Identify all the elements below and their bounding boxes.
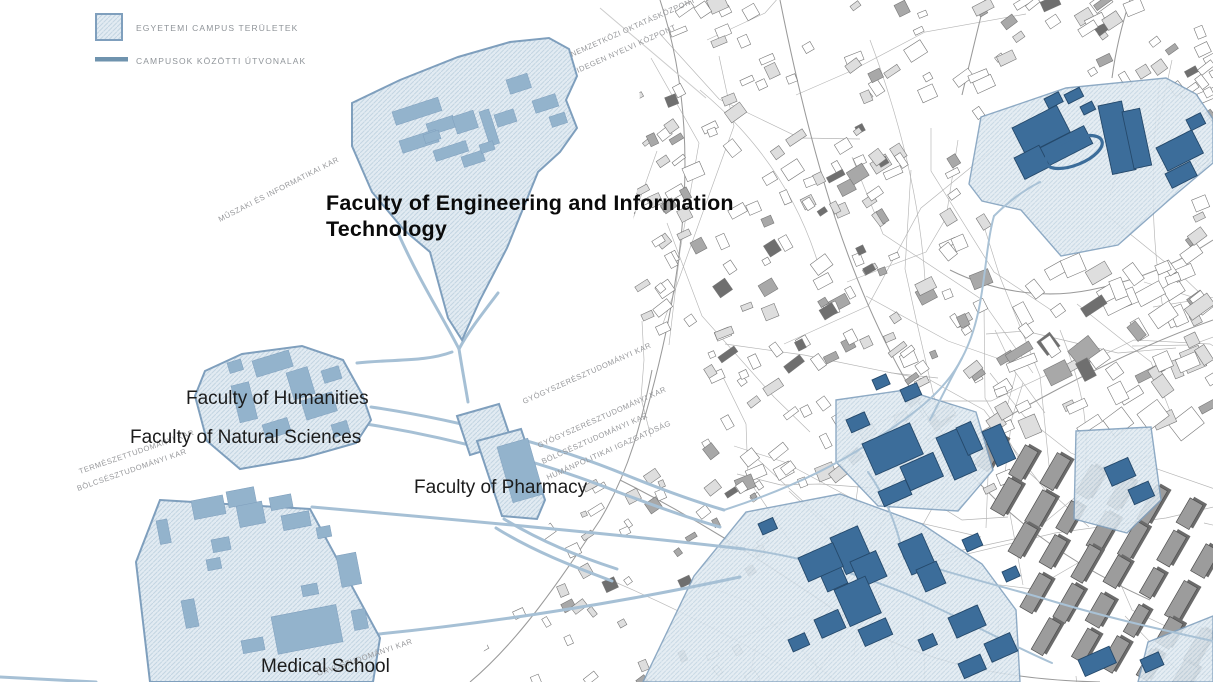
city-building [1205,366,1213,386]
parcel-line [667,223,810,432]
city-building [1013,302,1034,327]
city-building [1066,398,1088,414]
legend-campus-area-swatch [96,14,122,40]
label-engineering-line1: Faculty of Engineering and Information [326,191,734,215]
city-building [721,415,735,430]
city-building [969,269,993,290]
city-building [819,433,832,449]
city-building [722,93,738,106]
city-building [646,133,659,147]
label-humanities: Faculty of Humanities [186,388,369,409]
city-building [817,207,827,217]
legend-route-line-label: CAMPUSOK KÖZÖTTI ÚTVONALAK [136,56,306,66]
city-building [1060,253,1086,278]
city-building [530,674,542,682]
city-building [746,201,762,216]
city-building [581,511,588,518]
city-building [656,155,670,168]
city-building [587,606,597,617]
legend-campus-area-label: EGYETEMI CAMPUS TERÜLETEK [136,23,298,33]
city-building [948,188,961,200]
city-building [542,617,552,628]
city-building [638,659,649,672]
city-building [1151,59,1168,76]
city-building [786,129,807,147]
city-building [624,519,633,528]
city-building [617,619,627,628]
city-building [740,75,755,86]
city-building [1122,262,1144,285]
city-building [860,336,874,350]
city-building [1105,362,1123,380]
city-building [723,139,741,158]
annotation-gyogyszeresz-1: GYÓGYSZERÉSZTUDOMÁNYI KAR [521,341,652,406]
city-building [860,90,873,104]
city-building [763,239,781,257]
city-building [764,62,780,79]
city-building [784,355,805,374]
city-building [723,260,737,275]
city-building [1165,43,1178,55]
city-building [1192,195,1210,212]
city-building [708,351,716,359]
legend-route-line-swatch [95,57,128,62]
city-building [769,342,783,357]
city-building [704,479,722,496]
city-building [1168,407,1204,441]
city-building [942,289,953,300]
city-building [496,573,508,585]
campus-building-footprint [206,557,222,570]
city-building [770,146,784,160]
city-building [1194,25,1206,39]
city-building [1081,295,1107,317]
city-building [810,353,826,370]
city-building [718,346,738,363]
city-building [1085,261,1112,285]
campus-areas-left [136,38,577,682]
city-building [674,548,683,557]
city-building [1088,67,1098,77]
city-building [635,279,651,292]
city-building [762,257,771,266]
city-building [813,273,833,290]
city-building [1193,212,1206,222]
city-building [1040,0,1061,12]
city-building [1013,31,1025,43]
city-building [690,237,707,254]
city-building [502,548,515,561]
city-building [716,233,730,250]
label-medical-school: Medical School [261,656,390,677]
city-building [583,671,598,682]
city-building [564,635,574,646]
city-building [850,1,861,11]
city-building [1184,66,1198,78]
city-building [624,576,633,585]
city-building [737,34,751,48]
city-building [739,369,749,379]
campus-area-medical [136,500,380,682]
city-building [1001,14,1018,30]
city-building [1018,323,1033,339]
city-building [983,483,997,494]
city-building [557,583,570,597]
city-building [852,253,864,267]
parcel-line [542,151,657,323]
city-building [781,159,805,181]
city-building [802,41,814,53]
annotation-muszaki: MŰSZAKI ÉS INFORMATIKAI KAR [217,155,341,224]
city-building [1199,396,1213,414]
university-building [962,533,983,552]
city-building [800,405,812,418]
city-map-area [470,0,1213,682]
city-building [1134,281,1165,307]
label-engineering-line2: Technology [326,217,447,241]
city-building [754,480,763,490]
city-building [588,503,605,517]
city-building [741,302,754,311]
city-building [816,396,831,411]
city-building [713,278,733,298]
university-building [1002,566,1020,582]
city-building [829,201,840,214]
city-building [779,190,791,205]
city-building [493,593,506,607]
city-building [823,351,839,364]
city-building [1149,36,1161,47]
city-building [740,448,760,467]
city-building [747,396,761,409]
city-building [763,378,784,396]
city-building [628,92,644,104]
city-building [976,214,991,231]
city-building [677,229,691,240]
city-building [884,64,901,78]
city-building [655,322,670,336]
city-building [1123,0,1145,17]
city-building [883,332,895,342]
city-building [684,314,697,327]
city-building [1015,400,1031,413]
city-building [996,50,1016,67]
city-building [748,354,762,370]
city-building [1045,14,1061,29]
city-building [685,532,697,542]
city-building [1018,414,1042,439]
city-building [473,639,489,654]
city-building [1025,279,1044,299]
city-building [1194,42,1211,58]
city-building [889,252,900,261]
city-building [1050,303,1065,318]
campus-building-footprint [316,525,332,538]
city-building [1135,64,1151,79]
campus-area-engineering [352,38,577,340]
city-building [479,506,493,518]
city-building [834,137,852,154]
city-building [810,254,833,276]
campus-map-page: MŰSZAKI ÉS INFORMATIKAI KAR NEMZETKÖZI O… [0,0,1213,682]
label-natural-sciences: Faculty of Natural Sciences [130,427,361,448]
city-building [923,72,933,82]
city-building [725,487,738,498]
legend: EGYETEMI CAMPUS TERÜLETEK CAMPUSOK KÖZÖT… [95,14,306,66]
city-building [672,154,685,166]
city-building [894,0,910,17]
city-building [742,3,760,21]
city-building [917,10,927,18]
city-building [756,79,768,91]
city-building [929,350,937,359]
city-building [758,278,778,297]
city-building [1096,53,1113,67]
city-building [696,505,711,520]
city-building [913,26,924,35]
city-building [904,40,928,63]
label-pharmacy: Faculty of Pharmacy [414,477,588,498]
city-building [761,303,779,320]
university-building [872,374,890,390]
city-building [890,312,902,324]
campus-map-canvas: MŰSZAKI ÉS INFORMATIKAI KAR NEMZETKÖZI O… [0,0,1213,682]
city-building [917,84,937,103]
city-building [761,215,774,227]
city-building [641,310,654,321]
city-building [947,154,961,168]
city-building [768,442,788,461]
city-building [877,267,887,276]
